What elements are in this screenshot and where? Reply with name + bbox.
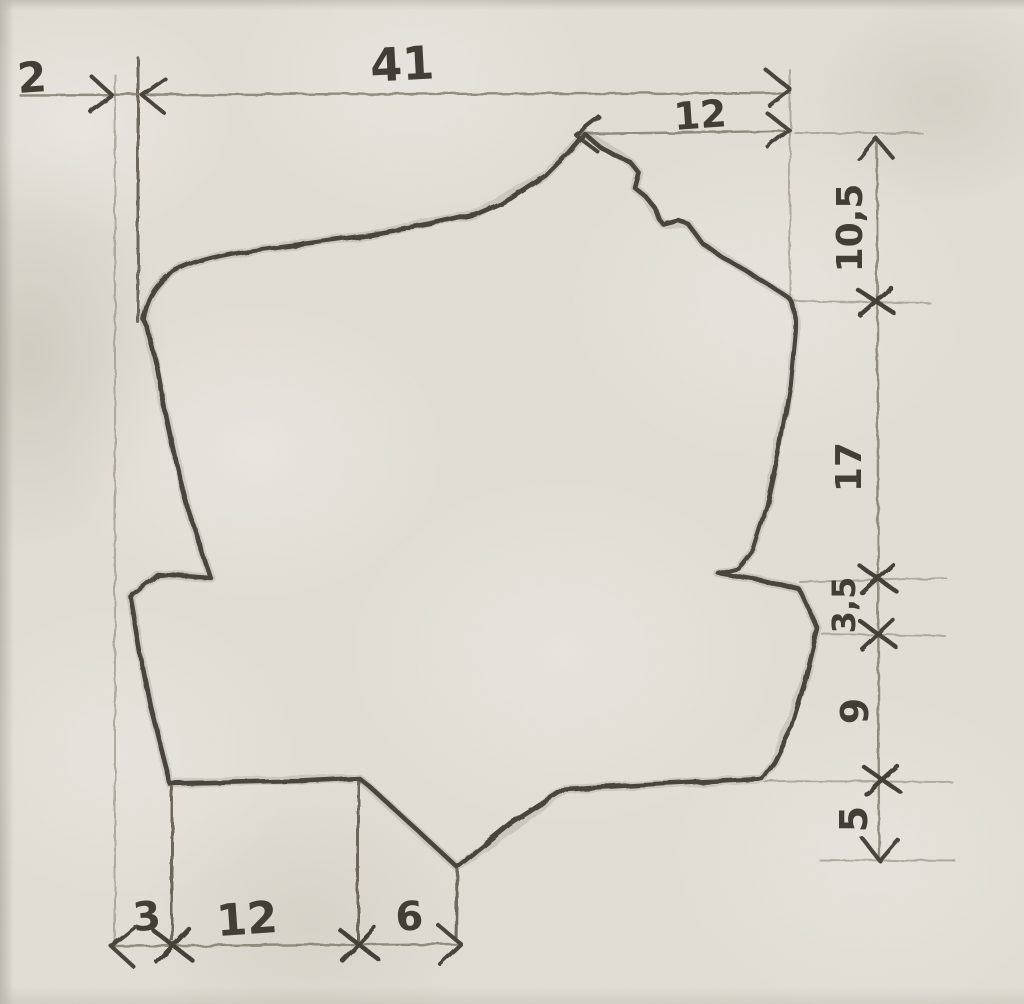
dim-label-bottom-right: 6: [394, 893, 424, 940]
dim-label-right-lower-mid: 3,5: [825, 577, 863, 634]
dim-label-right-top: 10,5: [830, 184, 871, 273]
dim-label-right-bottom: 5: [832, 806, 876, 832]
dim-label-top-right: 12: [672, 91, 728, 139]
dim-label-top-offset: 2: [16, 52, 49, 103]
dim-label-top-total: 41: [369, 35, 436, 92]
ext-line-right-y781: [764, 781, 952, 782]
dim-label-bottom-left: 3: [131, 893, 163, 941]
ext-line-bottom-x457: [456, 868, 457, 940]
dim-label-right-upper-mid: 17: [829, 442, 870, 492]
dim-label-right-lower: 9: [833, 698, 877, 724]
dim-label-bottom-middle: 12: [215, 892, 280, 947]
paper-grain-texture: [0, 0, 1024, 1004]
paper-background: 2 41 12 10,5 17 3,5 9 5 3 12 6: [0, 0, 1024, 1004]
sketch-canvas: 2 41 12 10,5 17 3,5 9 5 3 12 6: [0, 0, 1024, 1004]
ext-line-right-y860: [820, 860, 955, 861]
